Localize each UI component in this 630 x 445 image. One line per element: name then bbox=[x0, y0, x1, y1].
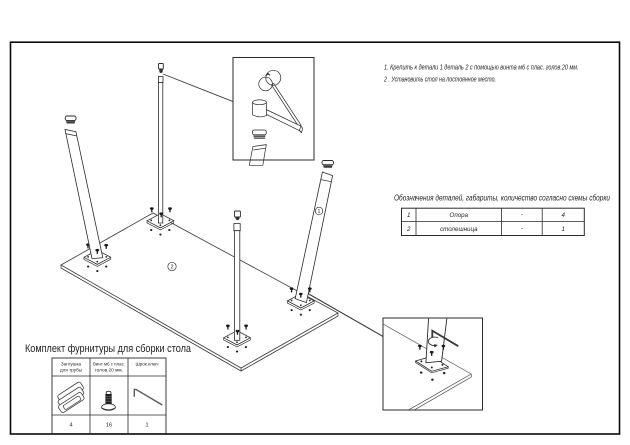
svg-text:Заглушка: Заглушка bbox=[61, 362, 82, 367]
svg-text:-: - bbox=[521, 212, 523, 219]
svg-text:1: 1 bbox=[318, 209, 321, 215]
svg-text:1: 1 bbox=[561, 226, 564, 233]
svg-text:голов.20 мм.: голов.20 мм. bbox=[95, 368, 123, 373]
svg-text:Обозначения деталей, габариты,: Обозначения деталей, габариты, количеств… bbox=[394, 193, 610, 203]
svg-text:2 . Установить стол на постоян: 2 . Установить стол на постоянное место. bbox=[383, 75, 496, 84]
svg-text:Опора: Опора bbox=[450, 212, 469, 219]
svg-text:Комплект фурнитуры для сборки: Комплект фурнитуры для сборки стола bbox=[25, 343, 191, 355]
svg-text:2: 2 bbox=[406, 226, 411, 233]
svg-text:Винт м6 с плас.: Винт м6 с плас. bbox=[93, 362, 125, 367]
svg-text:для трубы: для трубы bbox=[60, 368, 82, 373]
svg-text:4: 4 bbox=[561, 212, 565, 219]
svg-text:Шрок.ключ: Шрок.ключ bbox=[135, 362, 159, 367]
svg-text:1: 1 bbox=[407, 212, 410, 219]
svg-text:4: 4 bbox=[69, 423, 72, 429]
svg-text:-: - bbox=[521, 226, 523, 233]
svg-text:1: 1 bbox=[145, 423, 148, 429]
svg-text:1. Крепить к детали 1 деталь 2: 1. Крепить к детали 1 деталь 2 с помощью… bbox=[384, 63, 579, 72]
svg-text:столешница: столешница bbox=[440, 226, 478, 233]
svg-text:16: 16 bbox=[106, 423, 112, 429]
svg-text:2: 2 bbox=[170, 265, 173, 271]
